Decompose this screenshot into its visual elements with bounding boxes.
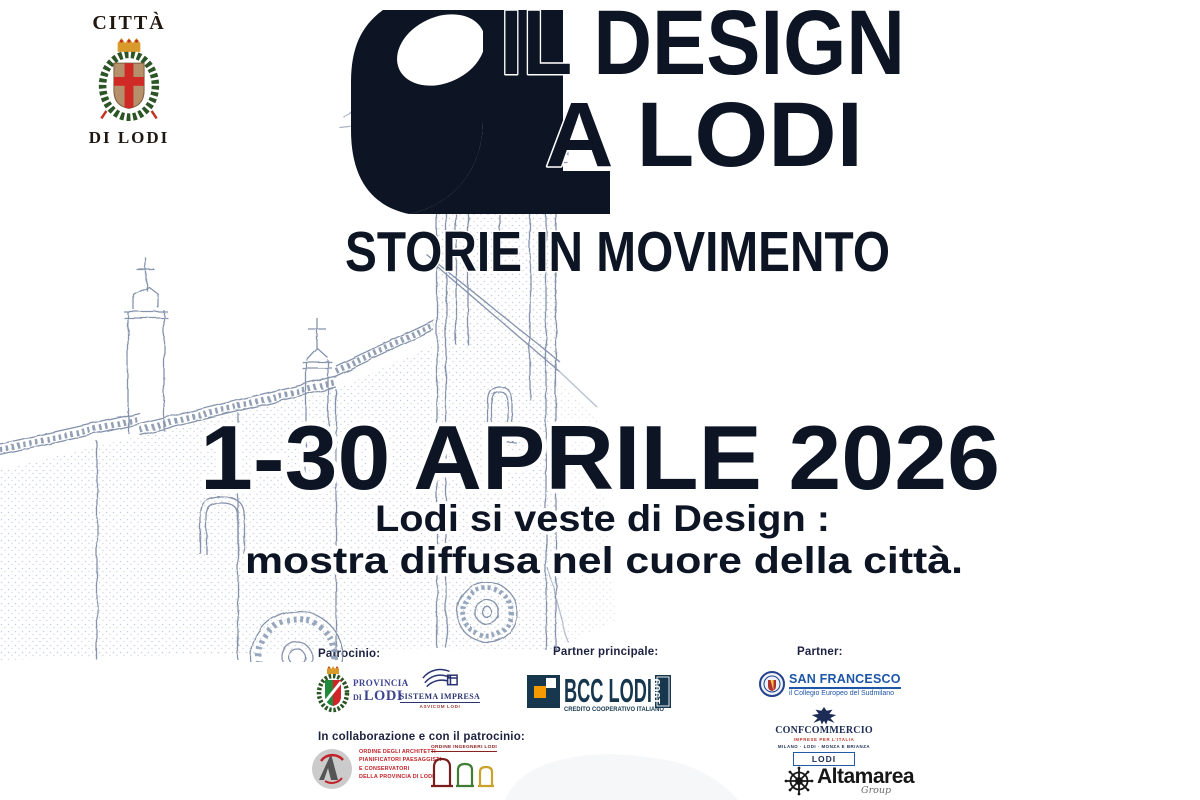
event-poster: CITTÀ DI LODI IL DESIGN A LODI STORIE IN… bbox=[0, 0, 1200, 800]
title-line1: IL DESIGN bbox=[500, 0, 905, 94]
citta-crest-icon bbox=[91, 38, 167, 126]
event-date: 1-30 APRILE 2026 bbox=[200, 408, 1000, 509]
title-line2: A LODI bbox=[545, 84, 863, 186]
title-subtitle: STORIE IN MOVIMENTO bbox=[345, 220, 890, 284]
citta-label: CITTÀ bbox=[70, 12, 188, 35]
citta-di-lodi-logo: CITTÀ DI LODI bbox=[70, 12, 188, 148]
event-tagline-1: Lodi si veste di Design : bbox=[375, 498, 830, 539]
event-tagline-2: mostra diffusa nel cuore della città. bbox=[245, 540, 963, 581]
di-lodi-label: DI LODI bbox=[70, 128, 188, 148]
